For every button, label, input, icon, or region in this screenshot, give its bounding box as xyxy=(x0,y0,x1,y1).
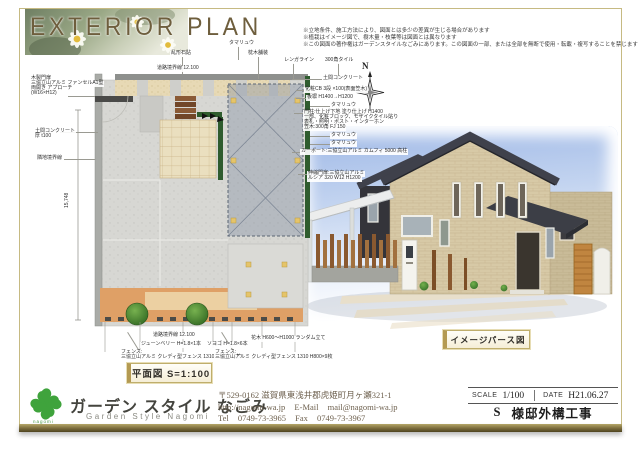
leader-line xyxy=(238,46,239,60)
compass-north-label: N xyxy=(362,61,369,71)
titleblock-divider xyxy=(534,390,535,401)
logo-wordmark: nagomi xyxy=(33,419,54,424)
annotation-wood-gate: (W16×H12) xyxy=(30,91,58,97)
page-title: EXTERIOR PLAN xyxy=(30,13,262,42)
website-url[interactable]: http://nagomi-wa.jp xyxy=(218,402,285,412)
house-rendering xyxy=(302,128,618,332)
annotation-tamaryu: タマリュウ xyxy=(330,133,357,139)
leader-line xyxy=(310,136,330,137)
project-title: S 様邸外構工事 xyxy=(468,404,618,421)
annotation-sleeper-paving: 枕木舗装 xyxy=(247,51,269,57)
email-label: E-Mail xyxy=(294,402,318,412)
annotation-soyogo: ソヨゴ H=1.8×6本 xyxy=(206,342,249,348)
bottom-band xyxy=(19,424,622,432)
annotation-road-boundary-top: 道路境界線 12.100 xyxy=(156,66,200,72)
annotation-road-boundary-bottom: 道路境界線 12.100 xyxy=(152,333,196,339)
leader-line xyxy=(294,113,303,114)
annotation-concrete-left: 厚 t100 xyxy=(34,134,52,140)
annotation-tamaryu: タマリュウ xyxy=(330,141,357,147)
disclaimer-block: ※立地条件、施工方法により、図面とは多少の差異が生じる場合があります ※植栽はイ… xyxy=(303,28,621,49)
fax-label: Fax xyxy=(295,413,308,423)
company-name-en: Garden Style Nagomi xyxy=(86,412,210,421)
site-plan-drawing xyxy=(60,60,320,360)
exterior-plan-sheet: EXTERIOR PLAN ※立地条件、施工方法により、図面とは多少の差異が生じ… xyxy=(0,0,640,453)
date-label: DATE xyxy=(543,392,563,399)
annotation-cb-block: 化粧CB 3段 ×100(表面笠木) xyxy=(304,87,368,93)
scale-value: 1/100 xyxy=(502,391,524,401)
left-dimension-label: 15,748 xyxy=(64,193,70,208)
email-address[interactable]: mail@nagomi-wa.jp xyxy=(328,402,398,412)
company-contact-block: 〒529-0162 滋賀県東浅井郡虎姫町月ヶ瀬321-1 http://nago… xyxy=(218,390,405,425)
annotation-juneberry: ジューンベリー H=1.8×1本 xyxy=(140,342,202,348)
date-value: H21.06.27 xyxy=(568,391,608,401)
leader-line xyxy=(293,63,294,80)
annotation-sliding-gate: ルシア 320 W12 H1200 xyxy=(307,176,362,182)
leader-line xyxy=(292,79,322,80)
annotation-brick-line: レンガライン xyxy=(283,58,315,64)
perspective-caption: イメージパース図 xyxy=(443,330,530,349)
disclaimer-line: ※この図面の著作権はガーデンスタイルなごみにあります。この図面の一部、または全部… xyxy=(303,42,621,49)
leader-line xyxy=(310,144,330,145)
annotation-board-fence: 板塀 H1400→H1200 xyxy=(306,95,354,101)
annotation-carport: カーポート:三協立山アルミ カムフィ 5000 高柱 xyxy=(300,149,408,155)
plan-caption: 平面図 S=1:100 xyxy=(127,363,212,383)
leader-line xyxy=(310,106,330,107)
leader-line xyxy=(296,90,304,91)
disclaimer-line: ※立地条件、施工方法により、図面とは多少の差異が生じる場合があります xyxy=(303,28,621,35)
annotation-concrete-right: 土間コンクリート xyxy=(322,76,364,82)
annotation-tamaryu: タマリュウ xyxy=(228,41,255,47)
annotation-adjacent-boundary: 隣地境界線 xyxy=(36,156,63,162)
title-block: SCALE 1/100 DATE H21.06.27 S 様邸外構工事 xyxy=(468,387,618,421)
postal-address: 〒529-0162 滋賀県東浅井郡虎姫町月ヶ瀬321-1 xyxy=(218,390,392,400)
tel-label: Tel xyxy=(218,413,229,423)
leader-line xyxy=(64,159,95,160)
annotation-stone-paving: 乱形石貼 xyxy=(170,51,192,57)
leader-line xyxy=(292,152,300,153)
leader-line xyxy=(258,57,259,79)
annotation-300-tile: 300角タイル xyxy=(324,58,354,64)
leader-line xyxy=(68,96,95,97)
leader-line xyxy=(298,174,307,175)
leader-line xyxy=(296,98,306,99)
project-name: 様邸外構工事 xyxy=(511,403,592,422)
tel-number: 0749-73-3965 xyxy=(238,413,286,423)
annotation-tamaryu: タマリュウ xyxy=(330,103,357,109)
annotation-gate-pillar: 笠木:300角 FJ 150 xyxy=(303,125,346,131)
clover-logo-icon xyxy=(27,387,65,423)
fax-number: 0749-73-3967 xyxy=(317,413,365,423)
annotation-fence-right: 三協立山アルミ クレディ型フェンス 1310 H800×9枚 xyxy=(214,355,333,361)
annotation-flowering-trees: 花木 H600〜H1000 ランダム立て xyxy=(250,336,326,342)
scale-label: SCALE xyxy=(472,392,497,399)
disclaimer-line: ※植栽はイメージ図で、樹木量・枝葉等は図面とは異なります xyxy=(303,35,621,42)
project-owner: S xyxy=(494,405,502,420)
